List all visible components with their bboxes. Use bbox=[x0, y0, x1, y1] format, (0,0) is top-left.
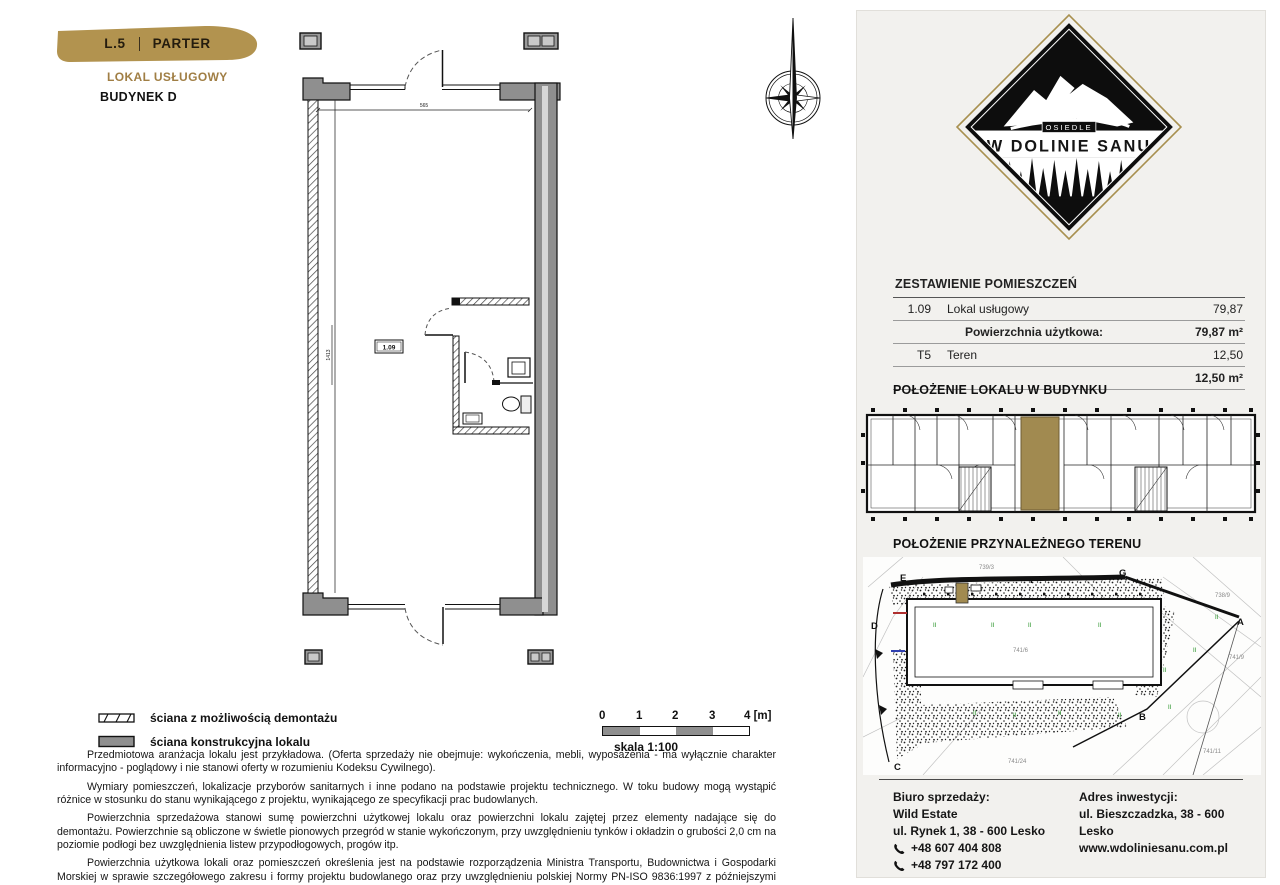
offer-sheet: L.5 PARTER LOKAL USŁUGOWY BUDYNEK D bbox=[0, 0, 1280, 885]
info-panel: OSIEDLE W DOLINIE SANU ZESTAWIENIE POMIE… bbox=[856, 10, 1266, 878]
svg-text:741/11: 741/11 bbox=[1203, 749, 1222, 755]
dimension-lines-group bbox=[316, 108, 532, 385]
svg-text:II: II bbox=[1215, 615, 1219, 621]
scale-tick: 0 bbox=[599, 710, 605, 722]
sales-office-block: Biuro sprzedaży: Wild Estate ul. Rynek 1… bbox=[893, 789, 1073, 874]
badge-separator bbox=[139, 37, 140, 51]
svg-text:D: D bbox=[871, 621, 878, 632]
scale-tick: 2 bbox=[672, 710, 678, 722]
svg-text:II: II bbox=[973, 711, 977, 717]
svg-text:II: II bbox=[1118, 713, 1122, 719]
table-row-total: Powierzchnia użytkowa: 79,87 m² bbox=[893, 321, 1245, 344]
section-title-site: POŁOŻENIE PRZYNALEŻNEGO TERENU bbox=[893, 537, 1141, 551]
floor-level: PARTER bbox=[153, 36, 211, 51]
svg-text:II: II bbox=[1028, 623, 1032, 629]
sales-office-title: Biuro sprzedaży: bbox=[893, 789, 1073, 806]
columns-group bbox=[300, 33, 558, 664]
investment-title: Adres inwestycji: bbox=[1079, 789, 1261, 806]
logo-name: W DOLINIE SANU bbox=[987, 137, 1151, 155]
svg-text:II: II bbox=[1168, 705, 1172, 711]
disclaimer-paragraph: Wymiary pomieszczeń, lokalizacje przybor… bbox=[57, 781, 776, 808]
svg-text:739/3: 739/3 bbox=[979, 565, 995, 571]
building-label: BUDYNEK D bbox=[100, 90, 177, 104]
badge-text: L.5 PARTER bbox=[55, 26, 260, 63]
svg-text:II: II bbox=[1098, 623, 1102, 629]
disclaimer-paragraph: Przedmiotowa aranżacja lokalu jest przyk… bbox=[57, 749, 776, 776]
svg-text:II: II bbox=[1163, 668, 1167, 674]
dimension-top-label: 565 bbox=[420, 103, 429, 109]
svg-text:C: C bbox=[894, 762, 901, 773]
room-label-box: 1.09 bbox=[375, 340, 403, 353]
svg-text:F: F bbox=[1030, 575, 1036, 586]
structural-walls-group bbox=[303, 78, 560, 615]
sales-office-name: Wild Estate bbox=[893, 806, 1073, 823]
legend-label: ściana konstrukcyjna lokalu bbox=[150, 735, 310, 749]
demountable-wall-icon bbox=[98, 711, 136, 724]
legend-item-demountable: ściana z możliwością demontażu bbox=[98, 710, 337, 725]
svg-text:741/9: 741/9 bbox=[1229, 655, 1245, 661]
website: www.wdoliniesanu.com.pl bbox=[1079, 840, 1261, 857]
building-footprint bbox=[907, 599, 1161, 685]
phone-icon bbox=[893, 860, 905, 872]
wall-core-stripe bbox=[542, 86, 548, 612]
site-plan: IIII IIII IIII IIII IIII IIII 739/3 738/… bbox=[863, 557, 1261, 775]
room-area: 12,50 bbox=[1213, 348, 1243, 362]
svg-text:B: B bbox=[1139, 712, 1146, 723]
estate-logo: OSIEDLE W DOLINIE SANU bbox=[955, 13, 1183, 241]
scale-tick: 3 bbox=[709, 710, 715, 722]
scale-bar-segments bbox=[602, 726, 750, 736]
sales-office-address: ul. Rynek 1, 38 - 600 Lesko bbox=[893, 823, 1073, 840]
bathroom-group bbox=[425, 298, 533, 434]
rooms-table-title: ZESTAWIENIE POMIESZCZEŃ bbox=[893, 273, 1245, 298]
contact-divider bbox=[879, 779, 1243, 780]
svg-text:A: A bbox=[1237, 617, 1244, 628]
section-title-building: POŁOŻENIE LOKALU W BUDYNKU bbox=[893, 383, 1107, 397]
entrance-door-swing-bottom bbox=[405, 608, 443, 645]
svg-text:738/9: 738/9 bbox=[1215, 593, 1231, 599]
svg-text:II: II bbox=[1193, 648, 1197, 654]
phone-row: +48 797 172 400 bbox=[893, 857, 1073, 874]
highlighted-unit bbox=[1021, 417, 1059, 510]
scale-tick: 1 bbox=[636, 710, 642, 722]
disclaimer-paragraph: Powierzchnia sprzedażowa stanowi sumę po… bbox=[57, 812, 776, 852]
floor-plan: 565 1413 bbox=[293, 25, 768, 675]
phone-number: +48 607 404 808 bbox=[911, 840, 1001, 857]
room-number: 1.09 bbox=[383, 345, 396, 352]
glazed-left-wall bbox=[308, 100, 318, 593]
svg-text:II: II bbox=[933, 623, 937, 629]
room-code: 1.09 bbox=[895, 302, 931, 316]
assigned-terrain-marker bbox=[956, 583, 968, 603]
dimension-side-label: 1413 bbox=[326, 349, 332, 360]
legend-item-structural: ściana konstrukcyjna lokalu bbox=[98, 734, 337, 749]
unit-type-label: LOKAL USŁUGOWY bbox=[107, 70, 228, 84]
logo-estate-word: OSIEDLE bbox=[1045, 123, 1092, 132]
table-row: 1.09 Lokal usługowy 79,87 bbox=[893, 298, 1245, 321]
svg-text:G: G bbox=[1119, 568, 1126, 579]
phone-number: +48 797 172 400 bbox=[911, 857, 1001, 874]
svg-text:741/6: 741/6 bbox=[1013, 648, 1029, 654]
room-area: 79,87 bbox=[1213, 302, 1243, 316]
investment-address-block: Adres inwestycji: ul. Bieszczadzka, 38 -… bbox=[1079, 789, 1261, 857]
total-label: Powierzchnia użytkowa: bbox=[965, 325, 1103, 339]
structural-wall-icon bbox=[98, 735, 136, 748]
unit-badge: L.5 PARTER bbox=[55, 26, 260, 63]
svg-text:II: II bbox=[1013, 713, 1017, 719]
toilet-fixture bbox=[503, 396, 532, 413]
legend-label: ściana z możliwością demontażu bbox=[150, 711, 337, 725]
scale-tick: 4 [m] bbox=[744, 710, 771, 722]
svg-text:E: E bbox=[900, 573, 906, 584]
building-overview-plan bbox=[859, 403, 1263, 533]
room-code: T5 bbox=[895, 348, 931, 362]
room-name: Teren bbox=[947, 348, 1213, 362]
phone-icon bbox=[893, 843, 905, 855]
investment-address: ul. Bieszczadzka, 38 - 600 Lesko bbox=[1079, 806, 1261, 840]
disclaimer-block: Przedmiotowa aranżacja lokalu jest przyk… bbox=[57, 749, 776, 885]
svg-text:II: II bbox=[1058, 711, 1062, 717]
total-area: 12,50 m² bbox=[1195, 371, 1243, 385]
room-name: Lokal usługowy bbox=[947, 302, 1213, 316]
svg-text:741/24: 741/24 bbox=[1008, 759, 1027, 765]
total-area: 79,87 m² bbox=[1195, 325, 1243, 339]
svg-text:II: II bbox=[991, 623, 995, 629]
washbasin-fixture bbox=[463, 413, 482, 424]
top-wall-group bbox=[350, 50, 500, 90]
rooms-table: ZESTAWIENIE POMIESZCZEŃ 1.09 Lokal usług… bbox=[893, 273, 1245, 390]
entrance-door-swing-top bbox=[405, 50, 442, 87]
disclaimer-paragraph: Powierzchnia użytkowa lokali oraz pomies… bbox=[57, 857, 776, 885]
unit-code: L.5 bbox=[104, 36, 125, 51]
table-row: T5 Teren 12,50 bbox=[893, 344, 1245, 367]
phone-row: +48 607 404 808 bbox=[893, 840, 1073, 857]
